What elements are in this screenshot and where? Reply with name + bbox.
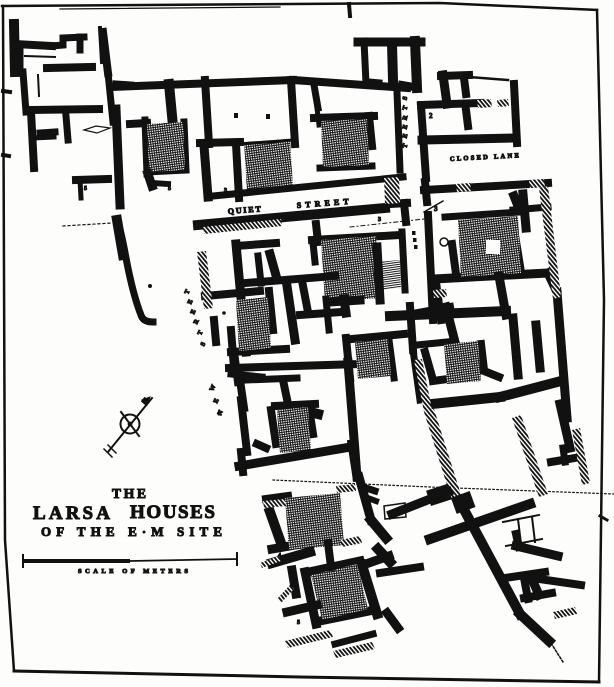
svg-text:THE: THE <box>112 486 146 501</box>
svg-text:SCALE OF METERS: SCALE OF METERS <box>78 568 188 575</box>
svg-text:3: 3 <box>224 188 227 194</box>
svg-text:5: 5 <box>297 620 300 626</box>
svg-text:5: 5 <box>168 186 171 192</box>
svg-text:2: 2 <box>429 112 433 120</box>
svg-text:5: 5 <box>84 186 87 192</box>
svg-text:3: 3 <box>434 205 438 213</box>
svg-text:3: 3 <box>378 217 381 223</box>
svg-text:2: 2 <box>218 411 221 417</box>
svg-text:LARSA: LARSA <box>33 503 110 524</box>
svg-text:3: 3 <box>254 442 257 448</box>
svg-text:HOUSES: HOUSES <box>130 502 215 523</box>
